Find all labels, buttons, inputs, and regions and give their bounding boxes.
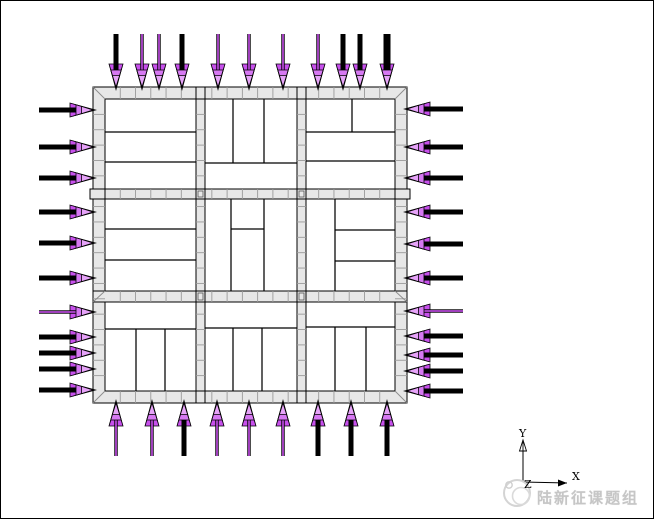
- load-arrow: [39, 140, 97, 154]
- load-arrow: [311, 34, 325, 91]
- load-arrow: [109, 399, 123, 456]
- load-arrows-top: [109, 34, 394, 91]
- load-arrow: [403, 237, 463, 251]
- load-arrow: [135, 34, 149, 91]
- load-arrow: [39, 205, 97, 219]
- axis-label-x: X: [572, 470, 580, 483]
- load-arrow: [403, 171, 463, 185]
- load-arrow: [403, 102, 463, 116]
- load-arrows-bottom: [109, 399, 394, 456]
- load-arrow: [403, 205, 463, 219]
- axis-label-y: Y: [518, 427, 527, 440]
- axis-triad-labels: Y X Z: [518, 427, 580, 491]
- load-arrow: [403, 364, 463, 378]
- load-arrow: [311, 399, 325, 456]
- load-arrow: [39, 236, 97, 250]
- load-arrow: [380, 34, 394, 91]
- load-arrow: [353, 34, 367, 91]
- load-arrow: [403, 384, 463, 398]
- load-arrow: [39, 103, 97, 117]
- load-arrow: [39, 346, 97, 360]
- load-arrow: [152, 34, 166, 91]
- load-arrows-right: [403, 102, 463, 398]
- load-arrow: [403, 329, 463, 343]
- load-arrow: [211, 34, 225, 91]
- load-arrow: [39, 362, 97, 376]
- structural-model-canvas: Y X Z: [1, 1, 654, 519]
- load-arrow: [39, 171, 97, 185]
- load-arrow: [403, 348, 463, 362]
- load-arrow: [276, 34, 290, 91]
- load-arrow: [403, 271, 463, 285]
- load-arrow: [403, 140, 463, 154]
- load-arrow: [336, 34, 350, 91]
- load-arrow: [175, 34, 189, 91]
- load-arrow: [210, 399, 224, 456]
- load-arrow: [39, 383, 97, 397]
- load-arrow: [403, 304, 463, 318]
- load-arrow: [39, 330, 97, 344]
- load-arrow: [39, 271, 97, 285]
- load-arrow: [242, 399, 256, 456]
- load-arrow: [380, 399, 394, 456]
- floor-plan: [93, 87, 407, 403]
- load-arrow: [276, 399, 290, 456]
- load-arrow: [145, 399, 159, 456]
- axis-label-z: Z: [524, 478, 532, 491]
- load-arrow: [344, 399, 358, 456]
- load-arrow: [177, 399, 191, 456]
- load-arrow: [109, 34, 123, 91]
- load-arrows-left: [39, 103, 97, 397]
- model-viewport: Y X Z 陆新征课题组: [0, 0, 654, 519]
- load-arrow: [242, 34, 256, 91]
- watermark-text: 陆新征课题组: [537, 487, 639, 508]
- load-arrow: [39, 305, 97, 319]
